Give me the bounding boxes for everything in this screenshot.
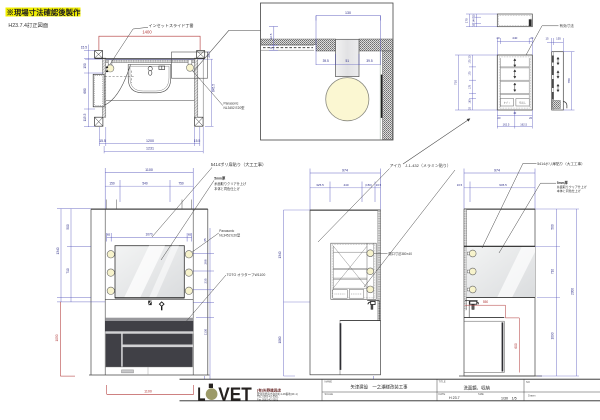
svg-text:1400: 1400	[142, 30, 152, 35]
svg-text:5414ポリ扉貼り（大工工事）: 5414ポリ扉貼り（大工工事）	[211, 161, 266, 168]
svg-text:32.5: 32.5	[269, 33, 273, 39]
svg-text:39.5: 39.5	[323, 59, 329, 63]
svg-text:65: 65	[188, 233, 192, 237]
svg-text:440: 440	[512, 36, 517, 40]
svg-text:有効寸法: 有効寸法	[560, 23, 575, 28]
svg-text:1070: 1070	[145, 233, 152, 237]
svg-text:15.5: 15.5	[81, 45, 87, 49]
svg-text:500: 500	[66, 224, 70, 230]
svg-text:440: 440	[343, 183, 348, 187]
svg-text:130: 130	[345, 11, 351, 15]
svg-text:15.5: 15.5	[194, 139, 201, 143]
svg-text:1100: 1100	[145, 168, 153, 172]
svg-text:1060: 1060	[278, 336, 282, 343]
svg-text:1130: 1130	[203, 328, 207, 335]
svg-text:1340: 1340	[278, 251, 282, 258]
svg-text:162.5: 162.5	[503, 122, 510, 126]
svg-text:Drawn: Drawn	[528, 394, 536, 398]
svg-text:974: 974	[342, 168, 348, 172]
svg-text:500: 500	[551, 224, 555, 230]
svg-text:L: L	[197, 384, 205, 405]
svg-text:20: 20	[530, 36, 534, 40]
svg-text:155: 155	[556, 37, 561, 41]
svg-text:140: 140	[472, 18, 476, 23]
svg-text:710: 710	[551, 269, 555, 275]
svg-text:※現場寸法確認後製作: ※現場寸法確認後製作	[7, 8, 82, 17]
svg-text:1200: 1200	[146, 139, 154, 143]
svg-text:16.5: 16.5	[376, 183, 382, 187]
svg-text:175: 175	[469, 71, 472, 76]
svg-text:170: 170	[464, 18, 468, 23]
svg-text:NL3452 E20型: NL3452 E20型	[224, 105, 246, 110]
svg-text:550: 550	[483, 300, 489, 304]
svg-text:710: 710	[66, 268, 70, 274]
svg-text:540: 540	[142, 182, 148, 186]
svg-text:16.5: 16.5	[457, 183, 463, 187]
svg-text:65: 65	[203, 238, 207, 242]
svg-text:162.5: 162.5	[520, 122, 527, 126]
svg-text:H 23.7: H 23.7	[449, 396, 460, 400]
svg-text:5mm厚: 5mm厚	[214, 175, 226, 180]
svg-text:本体と同色仕上げ: 本体と同色仕上げ	[557, 188, 581, 193]
svg-text:DATE: DATE	[439, 392, 446, 396]
svg-text:開口寸法380×40: 開口寸法380×40	[389, 251, 413, 256]
svg-text:引出し: 引出し	[519, 101, 527, 105]
svg-text:2300: 2300	[571, 288, 575, 295]
svg-text:150: 150	[109, 182, 115, 186]
svg-text:945.5: 945.5	[499, 183, 507, 187]
svg-text:175: 175	[469, 84, 472, 89]
svg-text:15: 15	[545, 37, 549, 41]
svg-text:1090: 1090	[551, 332, 555, 339]
svg-text:5414ポリ扉貼り（大工工事）: 5414ポリ扉貼り（大工工事）	[537, 161, 585, 166]
svg-text:TOTO オラターフW1100: TOTO オラターフW1100	[227, 272, 266, 277]
svg-text:974: 974	[494, 168, 500, 172]
svg-text:845.5: 845.5	[212, 84, 216, 92]
svg-text:710: 710	[454, 80, 458, 85]
svg-text:アイカ J-1-432（メラミン貼り）: アイカ J-1-432（メラミン貼り）	[390, 162, 451, 168]
svg-text:H23.7.4訂正図面: H23.7.4訂正図面	[8, 21, 48, 29]
svg-text:1100: 1100	[144, 390, 152, 394]
svg-text:VET: VET	[218, 384, 252, 405]
svg-text:NO: NO	[526, 380, 530, 384]
svg-text:680: 680	[83, 88, 87, 94]
svg-text:288: 288	[203, 259, 207, 264]
svg-text:39.5: 39.5	[366, 59, 372, 63]
svg-text:20: 20	[496, 36, 500, 40]
svg-text:インセットスライド丁番: インセットスライド丁番	[149, 22, 194, 28]
svg-text:NL3452 E20型: NL3452 E20型	[219, 232, 241, 237]
svg-text:TITLE: TITLE	[439, 379, 446, 383]
svg-text:SIZE: SIZE	[478, 392, 484, 396]
svg-text:600: 600	[514, 343, 518, 349]
svg-text:1050: 1050	[55, 334, 59, 341]
svg-text:洗面鏡、収納: 洗面鏡、収納	[464, 384, 491, 391]
svg-text:ｵｰﾌﾟﾝ: ｵｰﾌﾟﾝ	[504, 101, 511, 105]
svg-text:SCALE: SCALE	[325, 392, 334, 396]
svg-text:150: 150	[83, 63, 87, 69]
svg-text:糸面取りクリア什上げ: 糸面取りクリア什上げ	[214, 181, 247, 186]
svg-text:160: 160	[469, 99, 472, 104]
svg-text:51: 51	[346, 59, 350, 63]
svg-text:NAME: NAME	[325, 379, 333, 383]
svg-text:矢津建設 一之瀬様改装工事: 矢津建設 一之瀬様改装工事	[350, 384, 408, 391]
svg-text:本体と同色仕上げ: 本体と同色仕上げ	[214, 186, 240, 191]
svg-text:175: 175	[469, 59, 472, 64]
svg-text:1340: 1340	[56, 247, 60, 254]
svg-text:750: 750	[178, 182, 184, 186]
svg-text:15.5: 15.5	[99, 139, 106, 143]
svg-text:1231: 1231	[146, 147, 154, 151]
svg-text:325.5: 325.5	[316, 183, 324, 187]
svg-text:115.5: 115.5	[83, 113, 87, 121]
svg-text:(150): (150)	[365, 183, 372, 187]
svg-text:(有)矢野建具店: (有)矢野建具店	[257, 388, 281, 393]
svg-text:780: 780	[567, 78, 571, 83]
svg-text:Fax 0563-42-3501: Fax 0563-42-3501	[257, 397, 279, 401]
svg-text:235: 235	[203, 278, 207, 283]
svg-text:65: 65	[107, 233, 111, 237]
svg-text:1/30 1/5: 1/30 1/5	[501, 396, 517, 400]
